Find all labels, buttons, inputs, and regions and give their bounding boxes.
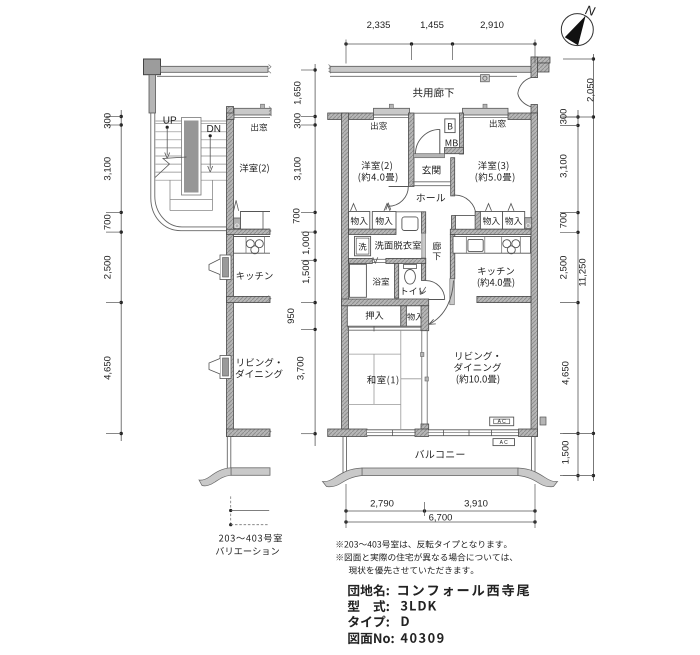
svg-text:2,335: 2,335 [367, 20, 391, 31]
svg-text:6,700: 6,700 [429, 513, 453, 524]
svg-text:2,910: 2,910 [480, 20, 504, 31]
svg-text:1,000: 1,000 [301, 231, 312, 255]
svg-text:2,500: 2,500 [102, 255, 113, 279]
svg-text:A C: A C [500, 440, 508, 446]
svg-text:4,650: 4,650 [102, 356, 113, 380]
svg-text:UP: UP [163, 115, 177, 126]
svg-text:1,500: 1,500 [301, 260, 312, 284]
svg-text:3,910: 3,910 [464, 499, 488, 510]
svg-text:3,100: 3,100 [292, 157, 303, 181]
svg-text:950: 950 [286, 308, 297, 324]
svg-text:300: 300 [102, 113, 113, 129]
svg-text:700: 700 [291, 208, 302, 224]
svg-text:3,100: 3,100 [102, 157, 113, 181]
svg-text:700: 700 [102, 214, 113, 230]
svg-text:1,500: 1,500 [560, 441, 571, 465]
svg-text:300: 300 [292, 113, 303, 129]
svg-text:DN: DN [206, 124, 220, 135]
svg-text:2,050: 2,050 [585, 78, 596, 102]
svg-text:4,650: 4,650 [560, 361, 571, 385]
svg-text:1,650: 1,650 [292, 81, 303, 105]
svg-text:3,700: 3,700 [295, 356, 306, 380]
svg-text:2,790: 2,790 [370, 499, 394, 510]
svg-text:3,100: 3,100 [558, 154, 569, 178]
svg-text:700: 700 [558, 213, 569, 229]
svg-text:2,500: 2,500 [558, 256, 569, 280]
svg-text:300: 300 [558, 109, 569, 125]
svg-text:11,250: 11,250 [577, 258, 588, 286]
svg-text:A C: A C [498, 419, 506, 425]
svg-text:1,455: 1,455 [420, 20, 444, 31]
